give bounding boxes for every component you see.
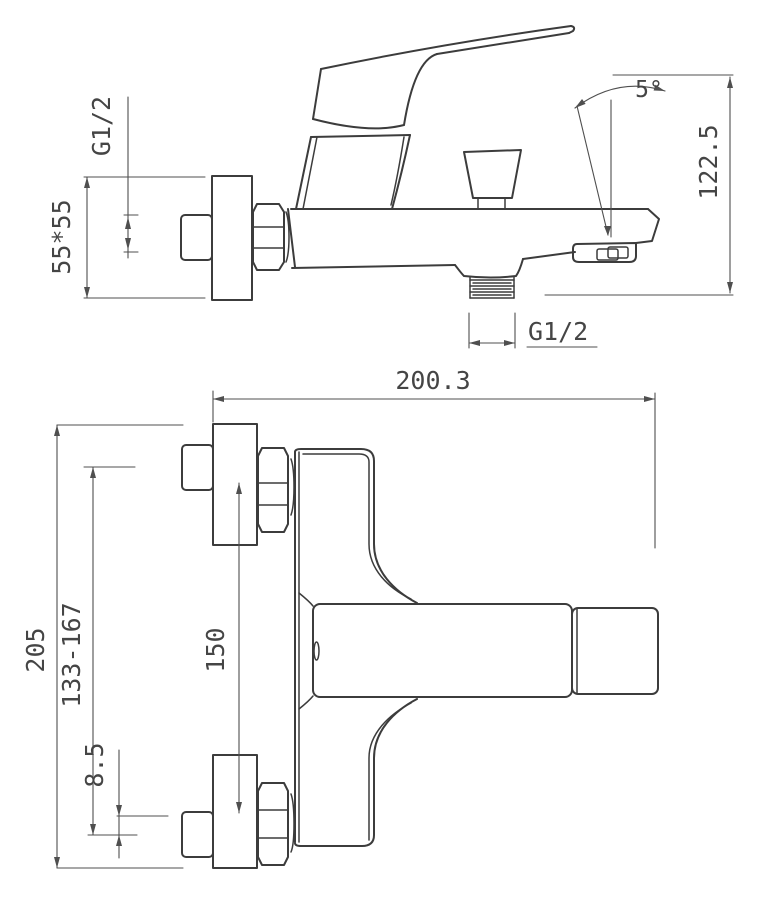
front-view [182, 424, 658, 868]
inlet-thread-label: G1/2 [87, 96, 116, 156]
inlet-distance-label: 150 [201, 627, 230, 672]
technical-drawing-page: G1/2 55*55 5° 122.5 [0, 0, 767, 901]
dim-outlet-thread: G1/2 [469, 313, 597, 348]
escutcheon-size-label: 55*55 [47, 199, 76, 274]
front-top-inlet-pipe [182, 445, 213, 490]
front-bottom-inlet-pipe [182, 812, 213, 857]
side-view [181, 26, 659, 300]
adjust-range-label: 133-167 [57, 602, 86, 707]
faucet-dimension-drawing: G1/2 55*55 5° 122.5 [0, 0, 767, 901]
side-lever-handle [313, 26, 574, 128]
outlet-thread-label: G1/2 [528, 317, 588, 346]
side-diverter-knob [464, 150, 521, 209]
front-spout [313, 604, 658, 697]
dim-front-height: 205 [21, 425, 183, 868]
front-height-label: 205 [21, 627, 50, 672]
side-inlet-pipe [181, 215, 212, 260]
side-view-dimensions: G1/2 55*55 5° 122.5 [47, 75, 733, 348]
front-top-escutcheon [213, 424, 257, 545]
front-bottom-hex-nut [258, 783, 294, 865]
dim-side-height: 122.5 [545, 75, 733, 295]
spout-angle-label: 5° [635, 77, 663, 103]
dim-inlet-distance: 150 [201, 483, 239, 813]
side-height-label: 122.5 [694, 124, 723, 199]
front-top-hex-nut [258, 448, 294, 532]
side-shower-outlet-thread [470, 277, 514, 298]
front-bottom-escutcheon [213, 755, 257, 868]
front-view-dimensions: 200.3 205 133-167 8.5 150 [21, 366, 655, 868]
wall-to-spout-label: 200.3 [395, 366, 470, 395]
side-hex-nut [253, 204, 289, 270]
side-escutcheon [212, 176, 252, 300]
dim-wall-to-spout: 200.3 [213, 366, 655, 548]
eccentric-offset-label: 8.5 [80, 742, 109, 787]
